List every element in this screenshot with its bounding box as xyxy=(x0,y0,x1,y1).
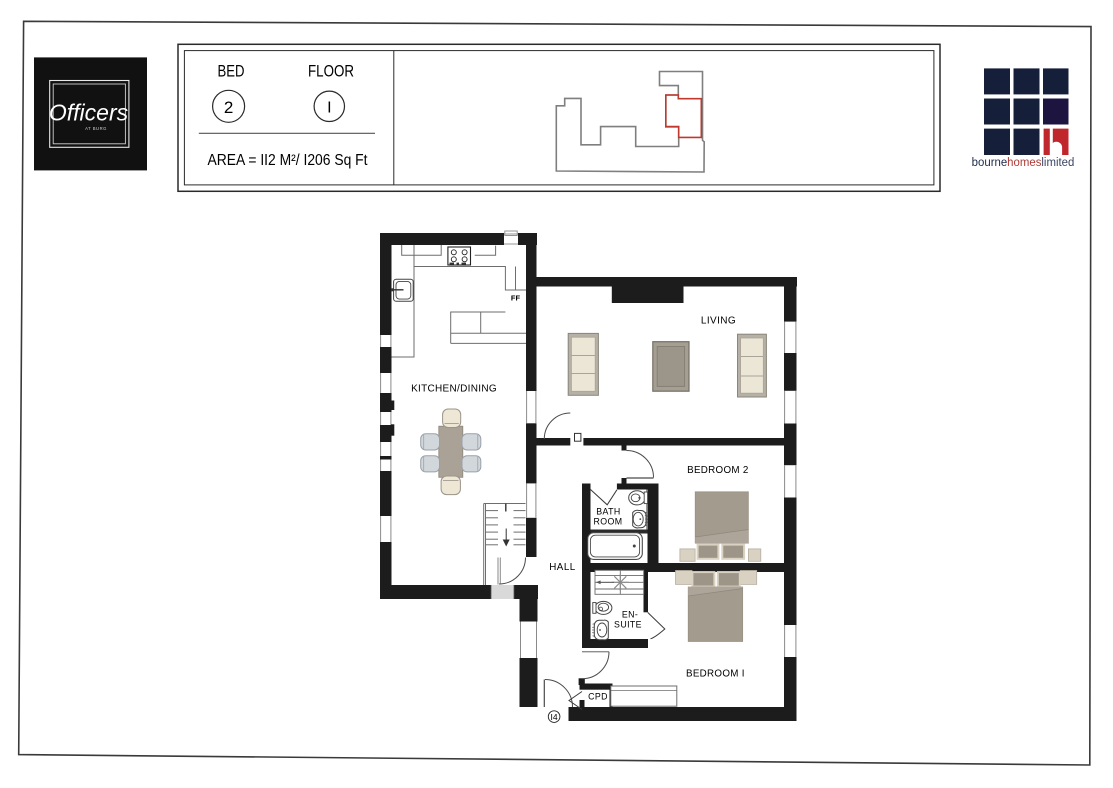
svg-text:AT BURG: AT BURG xyxy=(85,126,107,131)
svg-text:FF: FF xyxy=(511,294,521,303)
svg-text:bournehomeslimited: bournehomeslimited xyxy=(972,155,1075,170)
svg-text:AREA = II2 M²/ I206 Sq Ft: AREA = II2 M²/ I206 Sq Ft xyxy=(208,152,369,169)
svg-text:EN-: EN- xyxy=(622,610,638,620)
svg-text:BEDROOM 2: BEDROOM 2 xyxy=(687,465,749,476)
svg-text:CPD: CPD xyxy=(588,692,608,702)
svg-text:2: 2 xyxy=(224,98,233,117)
svg-text:HALL: HALL xyxy=(549,562,576,573)
svg-text:I4: I4 xyxy=(551,712,558,722)
svg-text:BED: BED xyxy=(218,63,245,81)
svg-text:I: I xyxy=(327,100,331,117)
svg-text:BEDROOM I: BEDROOM I xyxy=(686,669,745,680)
svg-text:FLOOR: FLOOR xyxy=(308,63,354,81)
svg-text:LIVING: LIVING xyxy=(701,316,736,327)
svg-text:KITCHEN/DINING: KITCHEN/DINING xyxy=(411,384,497,395)
svg-text:BATH: BATH xyxy=(596,507,620,517)
svg-text:ROOM: ROOM xyxy=(594,517,623,527)
svg-text:Officers: Officers xyxy=(49,100,129,126)
svg-text:SUITE: SUITE xyxy=(614,620,642,630)
